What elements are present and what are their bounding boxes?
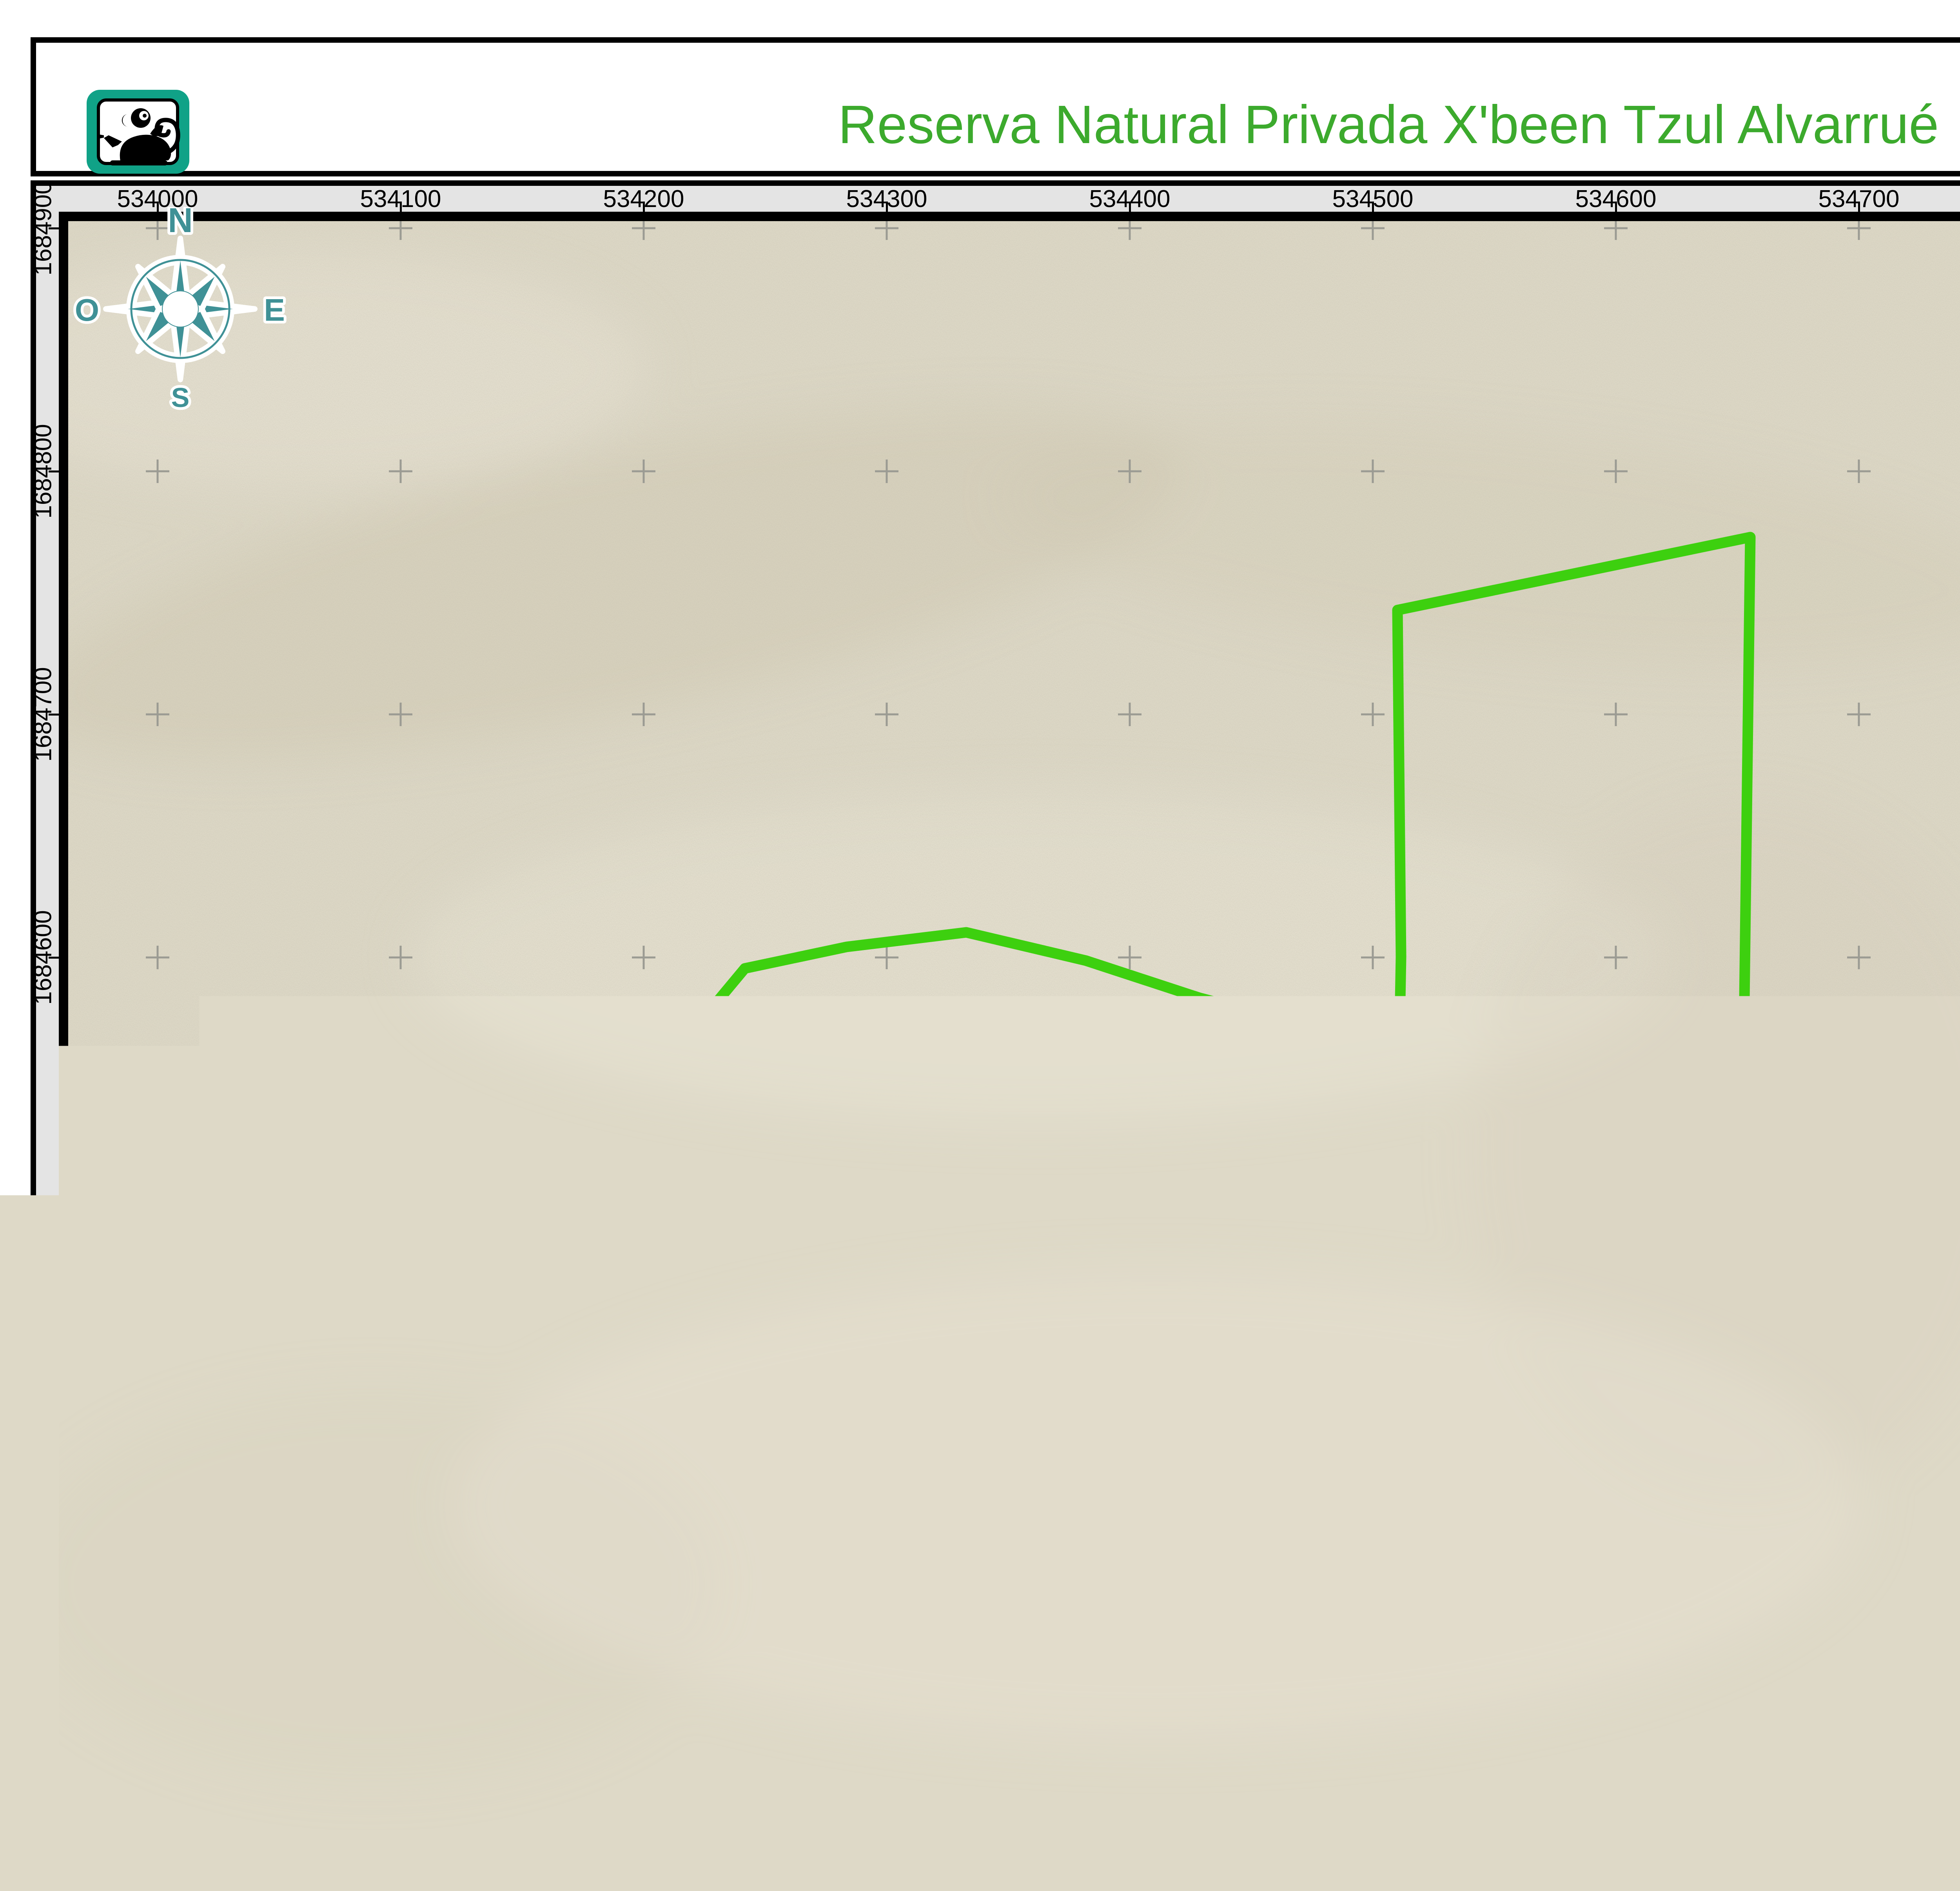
department-label: BAJA VERAPAZ <box>666 1012 1388 1064</box>
reserve-name-label: Reserva Natural Privada X'been Tzul Alva… <box>823 1130 1223 1289</box>
reserve-line: Natural <box>823 1162 1223 1193</box>
compass-n-label: N <box>168 207 193 240</box>
compass-o-label: O <box>75 292 99 327</box>
terrain-highlight <box>1888 1685 1960 1734</box>
reserve-line: Alvarrué <box>823 1257 1223 1289</box>
page-bottom-rule <box>31 1884 1960 1890</box>
page-title: Reserva Natural Privada X'been Tzul Alva… <box>193 94 1960 156</box>
scale-label: 0.13 <box>435 1744 490 1776</box>
scale-label: 0.06 <box>274 1744 329 1776</box>
scale-unit-label: Kilómetros <box>492 1744 625 1776</box>
header-band: CONAP Reserva Natural Privada X'been Tzu… <box>31 37 1960 176</box>
compass-s-label: S <box>171 382 190 411</box>
compass-e-label: E <box>264 292 285 327</box>
scale-bar: Kilómetros 00.030.060.13 <box>149 1737 815 1831</box>
reserve-line: Reserva <box>823 1130 1223 1162</box>
scale-label: 0.03 <box>205 1744 260 1776</box>
scale-label: 0 <box>156 1744 172 1776</box>
scale-ruler <box>149 1784 502 1831</box>
map-sheet: { "header": { "logo_text": "CONAP", "tit… <box>0 0 1960 1891</box>
reserve-line: Privada <box>823 1193 1223 1225</box>
reserve-line: X'been Tzul <box>823 1225 1223 1257</box>
compass-rose: N S O E <box>71 207 290 411</box>
conap-logo-icon <box>81 87 195 177</box>
